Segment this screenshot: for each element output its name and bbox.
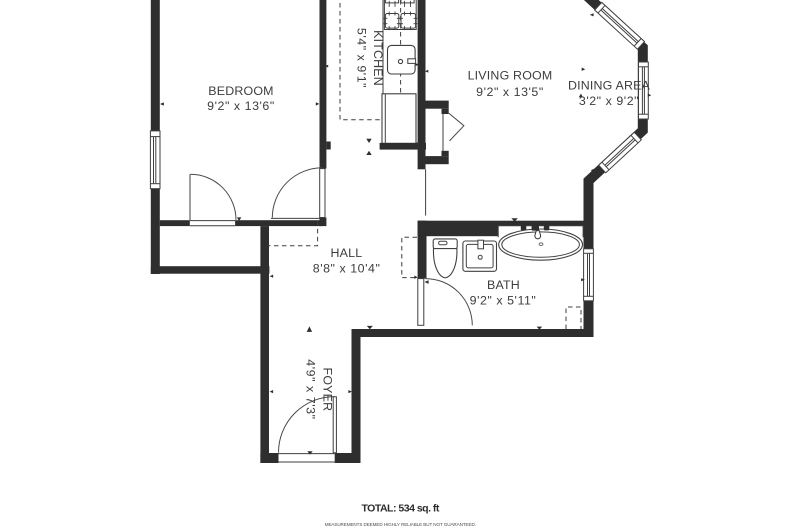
svg-text:3'2" x 9'2": 3'2" x 9'2" [579, 94, 639, 108]
svg-text:FOYER: FOYER [321, 368, 335, 412]
svg-text:8'8" x 10'4": 8'8" x 10'4" [313, 262, 381, 276]
svg-text:BEDROOM: BEDROOM [208, 84, 273, 98]
svg-text:9'2" x 5'11": 9'2" x 5'11" [470, 294, 537, 308]
svg-text:4'9" x 7'3": 4'9" x 7'3" [304, 359, 318, 419]
svg-text:MEASUREMENTS DEEMED HIGHLY REL: MEASUREMENTS DEEMED HIGHLY RELIABLE BUT … [325, 522, 476, 527]
svg-text:9'2" x 13'5": 9'2" x 13'5" [476, 85, 544, 99]
svg-text:9'2" x 13'6": 9'2" x 13'6" [207, 99, 275, 113]
svg-text:TOTAL: 534 sq. ft: TOTAL: 534 sq. ft [361, 503, 439, 515]
svg-text:HALL: HALL [331, 246, 363, 260]
svg-text:BATH: BATH [487, 278, 520, 292]
svg-text:KITCHEN: KITCHEN [371, 30, 385, 86]
svg-text:DINING AREA: DINING AREA [568, 79, 651, 93]
svg-text:5'4" x 9'1": 5'4" x 9'1" [355, 28, 369, 88]
svg-text:LIVING ROOM: LIVING ROOM [468, 69, 553, 83]
